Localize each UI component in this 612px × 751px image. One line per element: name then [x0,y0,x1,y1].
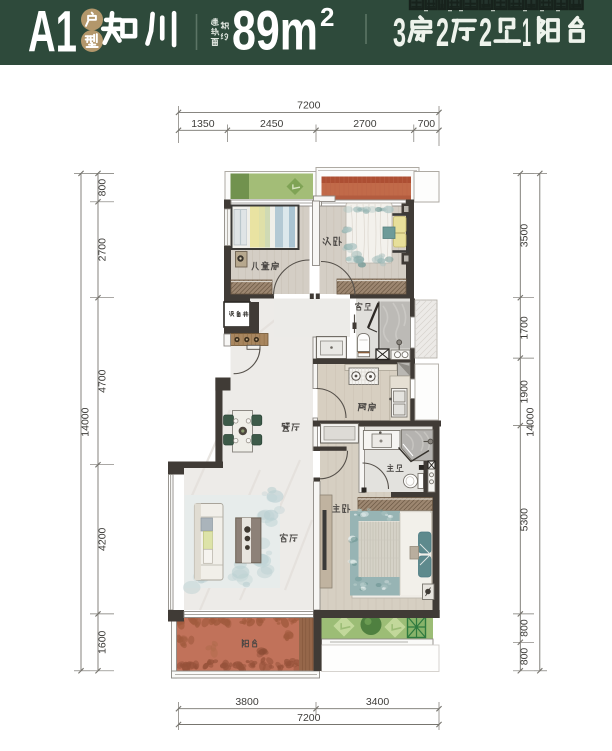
svg-text:3500: 3500 [519,224,531,248]
svg-text:4200: 4200 [97,527,109,551]
svg-text:7200: 7200 [297,712,321,724]
svg-text:3800: 3800 [235,696,259,708]
svg-text:14000: 14000 [80,407,92,436]
svg-text:2: 2 [479,11,492,55]
svg-text:700: 700 [418,118,436,130]
svg-text:1350: 1350 [191,118,215,130]
svg-text:A1: A1 [28,0,77,65]
svg-text:3: 3 [393,11,406,55]
svg-text:1: 1 [522,11,531,55]
svg-text:89m: 89m [232,0,318,62]
svg-text:800: 800 [519,648,531,666]
svg-text:1700: 1700 [519,316,531,340]
svg-text:800: 800 [97,179,109,197]
svg-text:5300: 5300 [519,508,531,532]
svg-text:2700: 2700 [97,238,109,262]
svg-text:2: 2 [436,11,449,55]
svg-text:1900: 1900 [519,380,531,404]
svg-text:4700: 4700 [97,369,109,393]
svg-text:1600: 1600 [97,630,109,654]
svg-text:14000: 14000 [525,407,537,436]
svg-text:3400: 3400 [366,696,390,708]
svg-text:2700: 2700 [353,118,377,130]
svg-text:800: 800 [519,619,531,637]
svg-text:7200: 7200 [297,100,321,112]
svg-text:2: 2 [320,2,334,32]
svg-text:2450: 2450 [260,118,284,130]
